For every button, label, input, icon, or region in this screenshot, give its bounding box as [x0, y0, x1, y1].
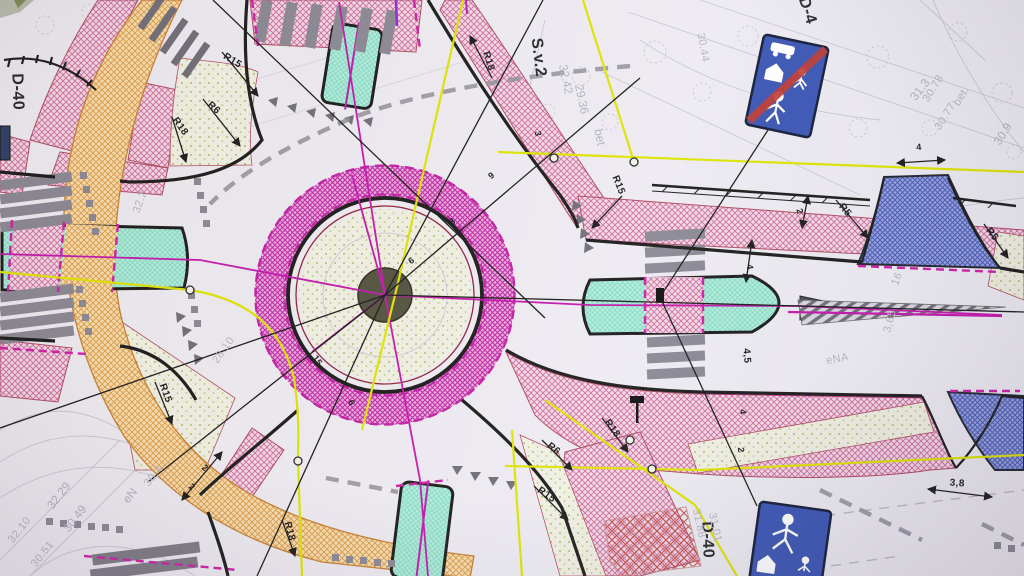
dim-label-3-8: 3,8: [949, 477, 965, 489]
dim-label-4-5: 4,5: [740, 348, 752, 364]
plan-canvas: R15 R6 R18 R18 R15 R5 R5 R15 R18 R15 R6 …: [0, 0, 1024, 576]
code-d40-left: D-40: [8, 73, 26, 111]
sign-home-zone: [745, 501, 832, 576]
dim-label-4-a: 4: [745, 264, 755, 270]
plan-photo: R15 R6 R18 R18 R15 R5 R5 R15 R18 R15 R6 …: [0, 0, 1024, 576]
dim-label-4-b: 4: [738, 409, 748, 415]
dim-label-4-c: 4: [916, 142, 922, 152]
dim-label-2-b: 2: [736, 447, 746, 453]
signpost-node: [656, 288, 664, 302]
clipped-sign-left-edge: [0, 126, 10, 160]
